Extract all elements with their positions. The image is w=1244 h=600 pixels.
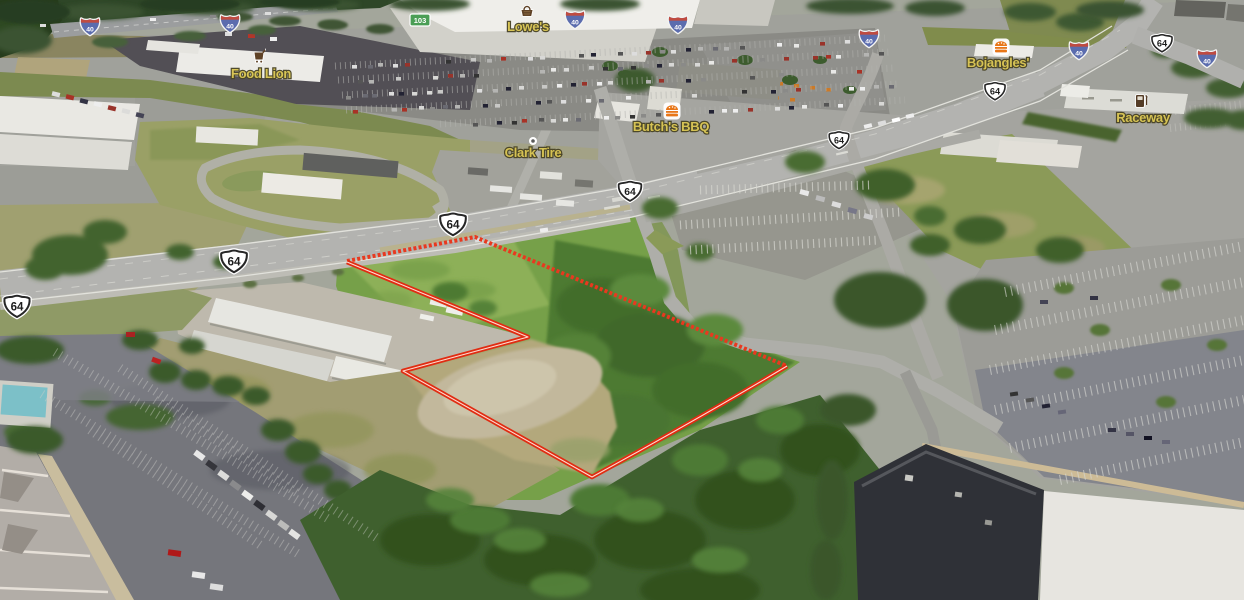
- svg-text:Clark Tire: Clark Tire: [505, 145, 562, 160]
- svg-text:Food Lion: Food Lion: [231, 66, 291, 81]
- svg-text:Butch's BBQ: Butch's BBQ: [633, 119, 710, 134]
- svg-text:103: 103: [414, 16, 427, 25]
- svg-text:Raceway: Raceway: [1116, 110, 1171, 125]
- svg-text:Bojangles': Bojangles': [967, 55, 1029, 70]
- svg-text:Lowe's: Lowe's: [507, 19, 549, 34]
